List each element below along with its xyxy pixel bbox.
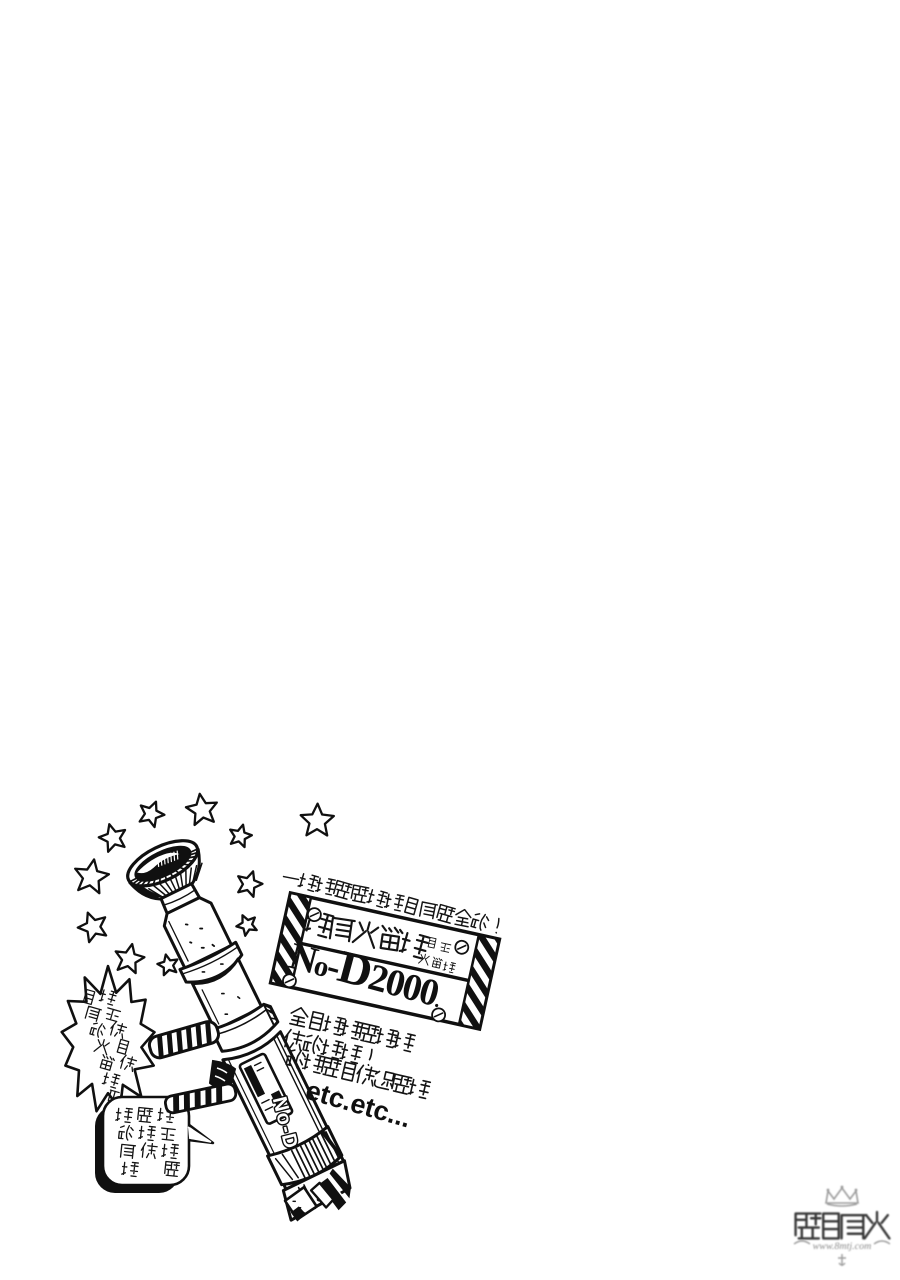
svg-text:www.8mtj.com: www.8mtj.com: [813, 1241, 872, 1252]
